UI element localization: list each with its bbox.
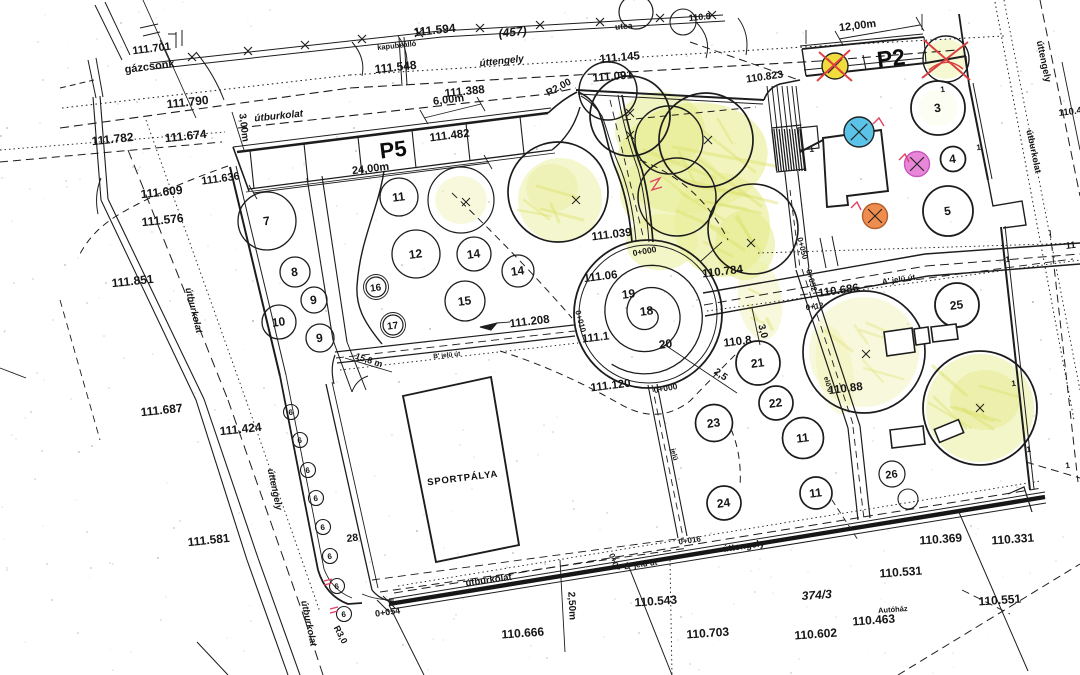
svg-text:110.369: 110.369 <box>919 531 963 548</box>
svg-text:110.602: 110.602 <box>794 626 838 643</box>
svg-text:110.8: 110.8 <box>688 11 711 23</box>
svg-text:utca: utca <box>615 20 634 32</box>
svg-text:110.543: 110.543 <box>634 593 678 610</box>
svg-text:110.666: 110.666 <box>501 625 545 642</box>
svg-text:26: 26 <box>885 468 899 481</box>
svg-text:24: 24 <box>716 495 731 511</box>
svg-text:23: 23 <box>706 415 721 431</box>
svg-text:110.531: 110.531 <box>879 564 923 581</box>
svg-text:28: 28 <box>346 532 359 545</box>
svg-text:22: 22 <box>768 395 783 411</box>
svg-text:110.703: 110.703 <box>686 625 730 642</box>
svg-text:15: 15 <box>457 293 472 309</box>
svg-text:12: 12 <box>408 246 423 262</box>
svg-text:110.551: 110.551 <box>978 592 1022 609</box>
svg-text:11: 11 <box>808 485 823 500</box>
svg-text:374/3: 374/3 <box>801 587 832 603</box>
svg-text:14: 14 <box>466 246 481 262</box>
svg-text:11: 11 <box>795 430 810 445</box>
svg-text:16: 16 <box>370 282 383 294</box>
svg-text:(457): (457) <box>498 24 527 41</box>
svg-text:21: 21 <box>750 355 765 371</box>
svg-text:P5: P5 <box>378 136 408 164</box>
svg-text:18: 18 <box>639 303 654 319</box>
svg-text:14: 14 <box>510 263 525 279</box>
svg-text:17: 17 <box>387 320 400 332</box>
svg-text:19: 19 <box>621 286 636 302</box>
svg-text:110.331: 110.331 <box>991 531 1035 548</box>
svg-text:2,50m: 2,50m <box>565 591 577 620</box>
svg-text:P2: P2 <box>875 43 906 72</box>
svg-text:11: 11 <box>391 189 406 204</box>
svg-text:25: 25 <box>949 297 964 313</box>
